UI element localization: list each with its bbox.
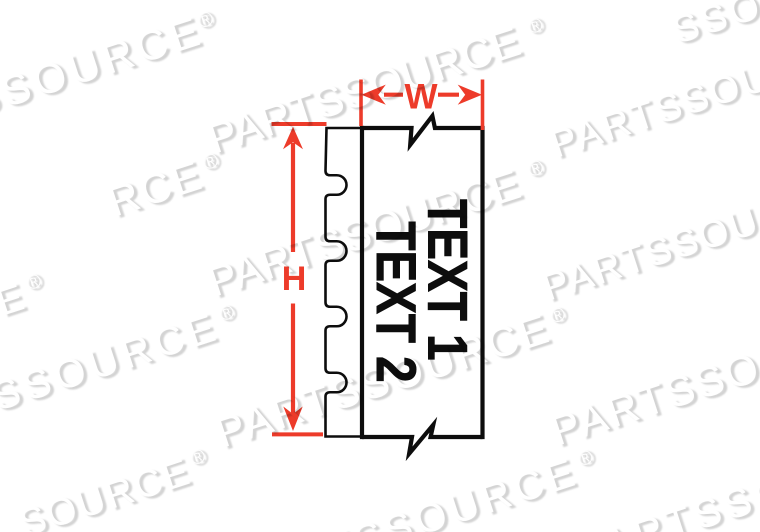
svg-text:RCE®: RCE® [102,144,230,226]
svg-text:PARTSSOURCE®: PARTSSOURCE® [202,9,553,163]
svg-text:SSOURCE®: SSOURCE® [668,0,760,53]
svg-text:PARTSSOURCE®: PARTSSOURCE® [538,166,760,309]
svg-text:PARTSSOURCE®: PARTSSOURCE® [202,151,553,305]
svg-text:PARTSSOURCE®: PARTSSOURCE® [546,21,760,166]
svg-text:PARTSSOURCE®: PARTSSOURCE® [545,295,760,454]
svg-text:SSOURCE®: SSOURCE® [0,297,249,419]
svg-text:PARTSSOURCE®: PARTSSOURCE® [232,442,607,532]
svg-text:PARTSSOURCE®: PARTSSOURCE® [210,297,577,456]
